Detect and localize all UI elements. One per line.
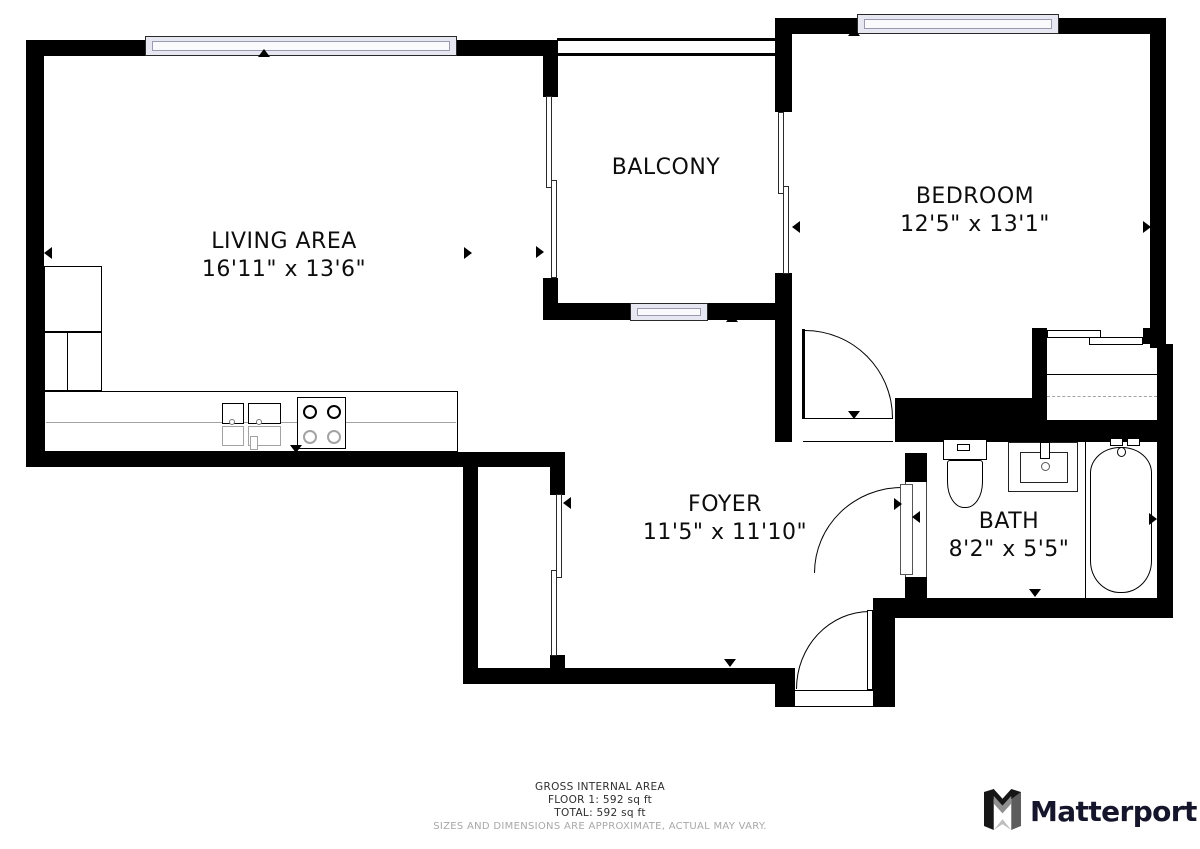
- stove-burner-top-right: [327, 405, 341, 419]
- balcony-railing-inner: [557, 53, 777, 56]
- label-living-area: LIVING AREA 16'11" x 13'6": [154, 228, 414, 284]
- sink-faucet-right: [256, 419, 262, 425]
- foyer-window-pane2: [551, 570, 557, 656]
- wall-entry-step: [775, 668, 795, 707]
- wall-living-top-right: [455, 40, 545, 56]
- wall-bedroom-bottom: [895, 398, 1032, 442]
- marker-living-window: [258, 49, 270, 57]
- wall-foyer-bottom: [463, 668, 787, 684]
- living-window: [145, 36, 457, 56]
- entry-doorway: [795, 690, 873, 707]
- wall-bath-left-upper: [905, 453, 927, 482]
- room-dims: 12'5" x 13'1": [855, 211, 1095, 239]
- marker-kitchen-counter: [290, 445, 302, 453]
- closet-shelf-line: [1047, 374, 1157, 375]
- bathtub: [1090, 447, 1152, 593]
- marker-foyer-bottom: [724, 659, 736, 667]
- room-name: FOYER: [605, 491, 845, 519]
- wall-balcony-left-top: [543, 40, 558, 97]
- stove-burner-bottom-right: [327, 430, 341, 444]
- label-balcony: BALCONY: [576, 154, 756, 182]
- room-name: BALCONY: [576, 154, 756, 182]
- sink-basin-right: [248, 403, 281, 424]
- footer-area-summary: GROSS INTERNAL AREA FLOOR 1: 592 sq ft T…: [350, 781, 850, 833]
- wall-living-bottom: [26, 452, 565, 467]
- room-name: LIVING AREA: [154, 228, 414, 256]
- wall-notch-outer: [463, 452, 478, 684]
- marker-balcony-right: [792, 221, 800, 233]
- floor-plan: LIVING AREA 16'11" x 13'6" BALCONY BEDRO…: [0, 0, 1200, 849]
- marker-bath-top: [1029, 433, 1041, 441]
- label-foyer: FOYER 11'5" x 11'10": [605, 491, 845, 547]
- marker-bath-door-outer: [894, 498, 902, 510]
- marker-bedroom-right: [1143, 221, 1151, 233]
- marker-balcony-window: [726, 314, 738, 322]
- wall-balcony-bottom-right: [708, 303, 775, 320]
- kitchen-cabinet: [44, 332, 102, 391]
- marker-bedroom-window: [848, 28, 860, 36]
- sink-faucet-left: [229, 419, 235, 425]
- marker-bedroom-door: [848, 411, 860, 419]
- wall-bath-top: [1020, 420, 1166, 442]
- wall-bath-right: [1157, 344, 1173, 618]
- entry-door-arc: [796, 611, 870, 689]
- marker-bath-bottom: [1029, 589, 1041, 597]
- wall-foyer-window-top: [550, 452, 565, 495]
- total-area-line: TOTAL: 592 sq ft: [350, 807, 850, 820]
- matterport-m-icon: [984, 789, 1021, 834]
- wall-balcony-left-bottom: [543, 278, 558, 320]
- fridge: [44, 266, 102, 332]
- toilet-flush-button: [957, 444, 970, 451]
- toilet-bowl: [947, 460, 983, 508]
- stove-burner-top-left: [303, 405, 317, 419]
- label-bath: BATH 8'2" x 5'5": [919, 508, 1099, 564]
- tub-faucet-left: [1110, 438, 1123, 446]
- bedroom-doorway: [803, 418, 893, 442]
- bedroom-door-arc: [805, 330, 893, 418]
- closet-rod-line: [1047, 396, 1157, 397]
- marker-balcony-left: [536, 246, 544, 258]
- vanity-drain: [1041, 462, 1050, 471]
- balcony-slider-right-pane1: [778, 112, 784, 194]
- kitchen-cabinet-divider: [67, 332, 68, 391]
- gross-internal-area-title: GROSS INTERNAL AREA: [350, 781, 850, 794]
- entry-door-leaf: [867, 610, 873, 690]
- room-name: BEDROOM: [855, 183, 1095, 211]
- wall-living-top-left: [26, 40, 147, 56]
- marker-living-right: [464, 247, 472, 259]
- matterport-wordmark: Matterport: [1030, 795, 1197, 828]
- tub-faucet-right: [1127, 438, 1140, 446]
- balcony-railing-outer: [557, 38, 777, 41]
- bedroom-window: [857, 14, 1059, 34]
- foyer-window-pane1: [556, 494, 562, 578]
- room-dims: 11'5" x 11'10": [605, 519, 845, 547]
- vanity-faucet: [1040, 442, 1050, 459]
- room-dims: 8'2" x 5'5": [919, 536, 1099, 564]
- wall-living-left: [26, 40, 44, 467]
- room-dims: 16'11" x 13'6": [154, 256, 414, 284]
- marker-bath-right: [1149, 513, 1157, 525]
- wall-bath-bottom: [880, 598, 1173, 618]
- wall-closet-top-right: [1143, 328, 1166, 344]
- marker-living-left: [44, 247, 52, 259]
- wall-bedroom-right: [1150, 18, 1166, 348]
- marker-foyer-window: [563, 497, 571, 509]
- balcony-slider-left-pane2: [551, 180, 557, 278]
- label-bedroom: BEDROOM 12'5" x 13'1": [855, 183, 1095, 239]
- balcony-slider-right-pane2: [783, 186, 789, 274]
- sink-cabinet-handle: [250, 436, 258, 450]
- stove-burner-bottom-left: [303, 430, 317, 444]
- balcony-window: [630, 303, 708, 321]
- matterport-logo: Matterport: [984, 789, 1197, 834]
- sink-cabinet-left: [222, 426, 244, 446]
- balcony-slider-left-pane1: [546, 96, 552, 188]
- wall-balcony-bottom-left: [558, 303, 630, 320]
- room-name: BATH: [919, 508, 1099, 536]
- wall-bedroom-top-left: [775, 18, 857, 34]
- closet-bypass-door2: [1089, 337, 1143, 345]
- wall-bath-left-lower: [905, 577, 927, 598]
- wall-bedroom-left-bottom: [775, 273, 792, 442]
- tub-shower-head: [1117, 447, 1126, 457]
- floor-area-line: FLOOR 1: 592 sq ft: [350, 794, 850, 807]
- disclaimer-text: SIZES AND DIMENSIONS ARE APPROXIMATE, AC…: [350, 820, 850, 833]
